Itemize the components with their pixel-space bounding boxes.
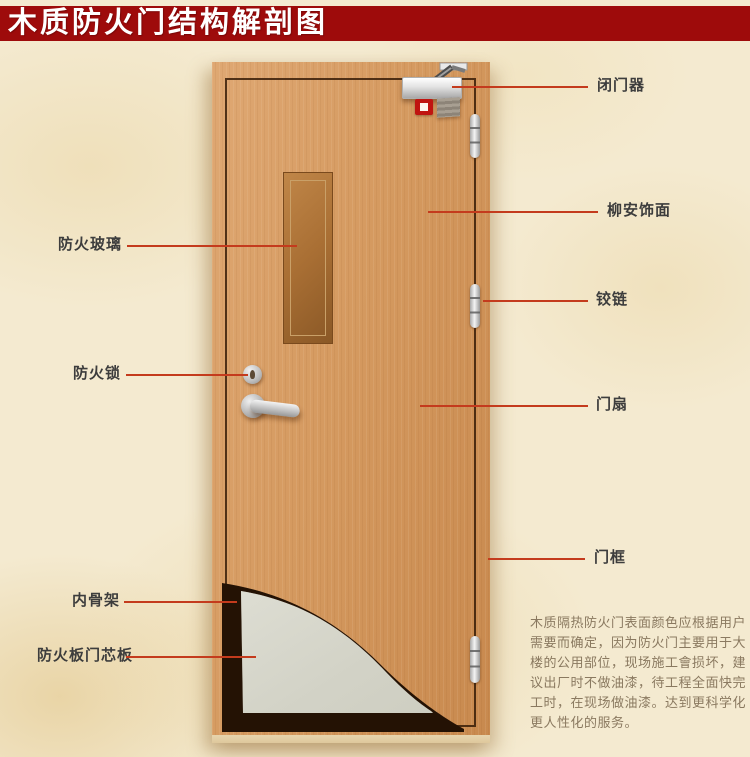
note-line: 更人性化的服务。: [530, 713, 748, 733]
fire-glass-pane: [290, 180, 326, 336]
note-line: 议出厂时不做油漆，待工程全面快完: [530, 673, 748, 693]
callout-line-fire-lock: [126, 374, 248, 376]
keyhole-icon: [250, 370, 255, 379]
title-banner: 木质防火门结构解剖图: [0, 6, 750, 41]
page: 木质防火门结构解剖图: [0, 0, 750, 757]
callout-line-lauan-veneer: [428, 211, 598, 213]
callout-line-door-leaf: [420, 405, 588, 407]
door-photo: [212, 62, 490, 743]
alarm-indicator-light: [420, 103, 428, 111]
callout-label-door-closer: 闭门器: [597, 78, 645, 94]
note-line: 木质隔热防火门表面颜色应根据用户: [530, 613, 748, 633]
note-line: 楼的公用部位，现场施工會损坏，建: [530, 653, 748, 673]
note-line: 工时，在现场做油漆。达到更科学化: [530, 693, 748, 713]
callout-label-hinge: 铰链: [596, 292, 628, 308]
callout-label-core-panel: 防火板门芯板: [37, 648, 133, 664]
callout-label-fire-glass: 防火玻璃: [58, 237, 122, 253]
callout-line-core-panel: [126, 656, 256, 658]
note-line: 需要而确定，因为防火门主要用于大: [530, 633, 748, 653]
closer-mount-plate: [437, 97, 460, 118]
callout-line-inner-skeleton: [124, 601, 237, 603]
door-closer-body: [402, 77, 462, 99]
callout-label-door-leaf: 门扇: [596, 397, 628, 413]
callout-label-inner-skeleton: 内骨架: [72, 593, 120, 609]
callout-line-hinge: [483, 300, 588, 302]
door-sill: [212, 735, 490, 743]
hinge-bottom: [470, 636, 480, 683]
page-title: 木质防火门结构解剖图: [0, 9, 328, 38]
callout-line-door-frame: [488, 558, 585, 560]
description-note: 木质隔热防火门表面颜色应根据用户 需要而确定，因为防火门主要用于大 楼的公用部位…: [530, 613, 748, 733]
callout-label-door-frame: 门框: [594, 550, 626, 566]
hinge-middle: [470, 284, 480, 328]
callout-label-fire-lock: 防火锁: [73, 366, 121, 382]
callout-label-lauan-veneer: 柳安饰面: [607, 203, 671, 219]
callout-line-door-closer: [452, 86, 588, 88]
hinge-top: [470, 114, 480, 158]
fire-glass-window-frame: [283, 172, 333, 344]
callout-line-fire-glass: [127, 245, 297, 247]
alarm-indicator: [415, 99, 433, 115]
core-panel-shading: [241, 591, 433, 713]
